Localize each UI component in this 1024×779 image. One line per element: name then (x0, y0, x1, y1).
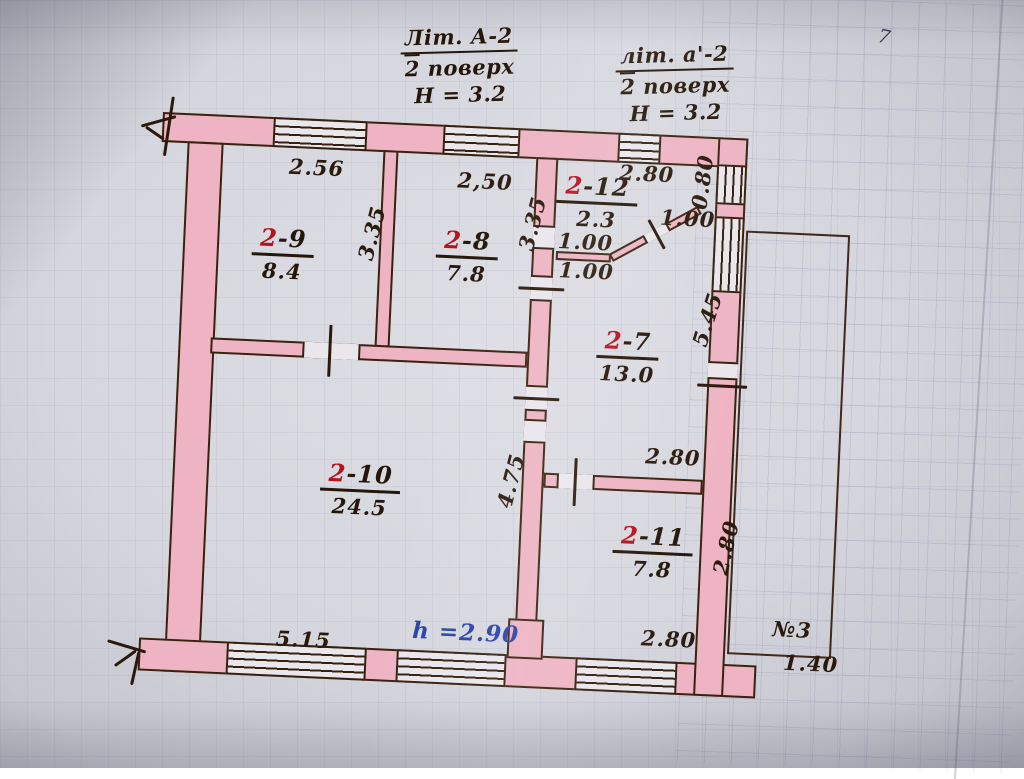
title-block-letter-a2: літ. а'-2 2 поверх Н = 3.2 (599, 40, 751, 127)
porch-number: №3 (752, 615, 833, 644)
room-number: 2-8 (435, 225, 499, 261)
wall-room9-room10 (210, 337, 527, 367)
dim-niche-lower: 1.00 (554, 257, 619, 285)
window (715, 164, 747, 205)
dim-niche-diagonal: 1.00 (655, 204, 720, 232)
litera-label: літ. а'-2 (615, 40, 734, 72)
dim-niche-upper: 1.00 (553, 228, 618, 256)
corner-mark-bottom-left (114, 650, 137, 667)
wall-exterior-left (164, 141, 224, 673)
window (442, 125, 520, 158)
height-label: Н = 3.2 (600, 98, 751, 127)
porch-outline (727, 231, 850, 659)
room-number: 2-9 (251, 222, 315, 258)
room-number: 2-10 (320, 458, 401, 495)
floor-plan: 2-9 8.4 2-8 7.8 2-12 2.3 2-7 13.0 2-10 2… (136, 112, 862, 743)
room-area: 7.8 (405, 258, 526, 288)
room-area: 13.0 (571, 359, 682, 389)
room-label-2-10: 2-10 24.5 (299, 457, 422, 522)
window (273, 117, 368, 151)
litera-label: Літ. А-2 (400, 22, 519, 54)
vent-opening (707, 361, 738, 380)
dim-room9-width: 2.56 (266, 153, 367, 183)
room-number: 2-7 (596, 325, 660, 361)
room-number: 2-11 (612, 520, 693, 557)
dim-room10-bottom-width: 5.15 (253, 625, 354, 655)
room-area: 8.4 (221, 256, 342, 286)
room-area: 7.8 (591, 554, 712, 584)
title-block-letter-A2: Літ. А-2 2 поверх Н = 3.2 (381, 22, 538, 109)
height-label: Н = 3.2 (382, 80, 538, 109)
dim-room7-bottom-width: 2.80 (627, 442, 718, 471)
dim-porch-width: 1.40 (770, 649, 851, 678)
room-label-2-7: 2-7 13.0 (571, 324, 684, 389)
room-label-2-11: 2-11 7.8 (591, 519, 714, 584)
dim-room11-width: 2.80 (623, 624, 714, 653)
window (574, 657, 677, 695)
room-area: 24.5 (299, 492, 420, 522)
door-opening (302, 342, 361, 361)
room-label-2-8: 2-8 7.8 (405, 223, 528, 288)
scanned-paper: Літ. А-2 2 поверх Н = 3.2 літ. а'-2 2 по… (0, 0, 1024, 768)
ceiling-height-note: h =2.90 (405, 617, 526, 649)
room-label-2-9: 2-9 8.4 (221, 221, 344, 286)
dim-room8-width: 2,50 (435, 166, 536, 196)
floor-label: 2 поверх (600, 71, 751, 100)
paper-fold-line (954, 0, 1004, 779)
dim-room12-width: 2.80 (610, 159, 683, 187)
floor-label: 2 поверх (382, 53, 538, 82)
door-opening (523, 419, 546, 444)
page-number-mark: 7 (876, 25, 892, 49)
window (395, 649, 506, 687)
